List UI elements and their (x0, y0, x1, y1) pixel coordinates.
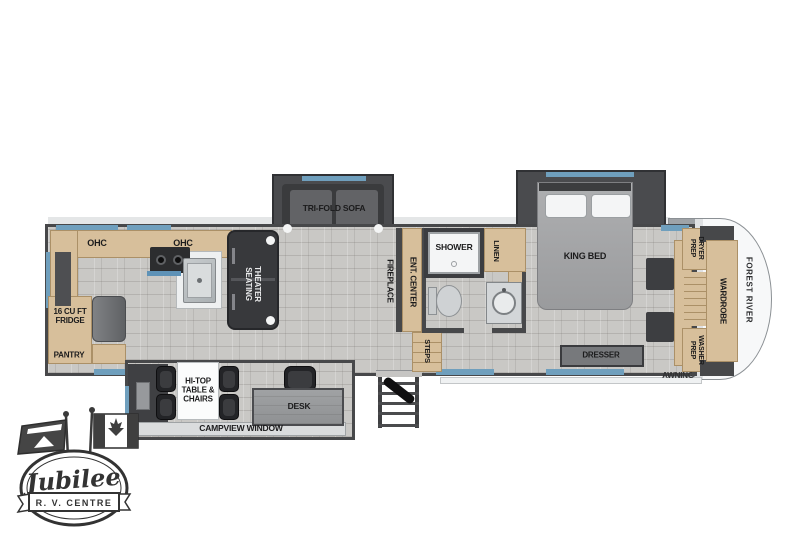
chair-pad (223, 371, 235, 388)
shower-pan (428, 232, 480, 274)
theater-armrest-top (232, 248, 235, 264)
shower-drain (451, 261, 457, 267)
brand-label: FOREST RIVER (744, 257, 753, 323)
bed-slide-window (546, 172, 634, 177)
rear-hutch (55, 252, 71, 306)
pillow-right (591, 194, 631, 218)
nightstand-top (646, 258, 674, 290)
sofa-label: TRI-FOLD SOFA (303, 204, 366, 214)
theater-armrest-bottom (232, 294, 235, 310)
sofa-cupholder-right (374, 224, 383, 233)
step-rung-4 (378, 412, 419, 415)
chair-pad (288, 371, 312, 388)
desk-label: DESK (288, 402, 311, 412)
pole-finial-right (89, 407, 95, 413)
dining-chair-4 (219, 394, 239, 420)
entry-steps-icon (376, 374, 422, 430)
logo-banner: R. V. CENTRE (18, 493, 130, 512)
campview-window-label: CAMPVIEW WINDOW (199, 424, 282, 434)
dresser-label: DRESSER (582, 352, 619, 361)
chair-pad (160, 399, 172, 416)
linen-label: LINEN (492, 240, 500, 262)
step-rung-3 (378, 402, 419, 405)
laundry-shelves (684, 272, 708, 326)
kitchen-mat (147, 271, 181, 276)
dining-chair-3 (219, 366, 239, 392)
step-rung-5 (378, 424, 419, 427)
floorplan-canvas: FOREST RIVER TRI-FOLD SOFA AWNING OHC OH… (0, 0, 800, 534)
sofa-cupholder-left (283, 224, 292, 233)
ent-center-label: ENT. CENTER (408, 257, 417, 307)
toilet (436, 285, 462, 317)
linen-closet (484, 228, 526, 272)
bc-flag-icon (18, 420, 66, 454)
theater-label: THEATER SEATING (243, 266, 261, 302)
step-handrail (382, 376, 416, 405)
hi-top-table-label: HI-TOP TABLE & CHAIRS (182, 378, 215, 405)
awning-text-clip: AWNING (648, 372, 708, 379)
pole-finial-left (63, 411, 69, 417)
sofa-slide-window (302, 176, 366, 181)
dryer-prep-label: DRYER PREP (688, 236, 704, 259)
bed-headboard (539, 183, 631, 191)
sink-drain (197, 278, 202, 283)
window-bottom-3 (546, 369, 624, 375)
theater-cupholder-bottom (266, 316, 275, 325)
pantry-label: PANTRY (54, 352, 85, 361)
pillow-left (545, 194, 587, 218)
bath-wall-bottom-left (422, 328, 464, 333)
window-bottom-2 (436, 369, 494, 375)
vanity-faucet (502, 288, 506, 292)
ohc-right-label: OHC (173, 238, 192, 248)
bath-wall-bottom-right (492, 328, 526, 333)
nightstand-bottom (646, 312, 674, 342)
wardrobe-wall-bottom (700, 360, 734, 376)
chair-pad (160, 371, 172, 388)
canada-flag-icon (94, 414, 138, 448)
fridge-label: 16 CU FT FRIDGE (53, 308, 86, 326)
fireplace-label: FIREPLACE (385, 259, 394, 303)
refrigerator (92, 296, 126, 342)
dining-chair-1 (156, 366, 176, 392)
stove-burner-left (156, 255, 166, 265)
vanity-sink (492, 291, 516, 315)
theater-cupholder-top (266, 236, 275, 245)
logo-subtitle: R. V. CENTRE (36, 498, 113, 508)
steps-label: STEPS (423, 339, 431, 363)
awning-label: AWNING (648, 372, 708, 379)
stove-burner-right (173, 255, 183, 265)
wardrobe-label: WARDROBE (718, 278, 727, 324)
dining-chair-2 (156, 394, 176, 420)
king-bed-label: KING BED (564, 251, 606, 261)
ohc-left-label: OHC (87, 238, 106, 248)
chair-pad (223, 399, 235, 416)
washer-prep-label: WASHER PREP (688, 335, 704, 365)
dealer-logo: Jubilee R. V. CENTRE (8, 396, 148, 530)
cabinet-below-fridge (92, 344, 126, 364)
shower-label: SHOWER (435, 243, 472, 253)
